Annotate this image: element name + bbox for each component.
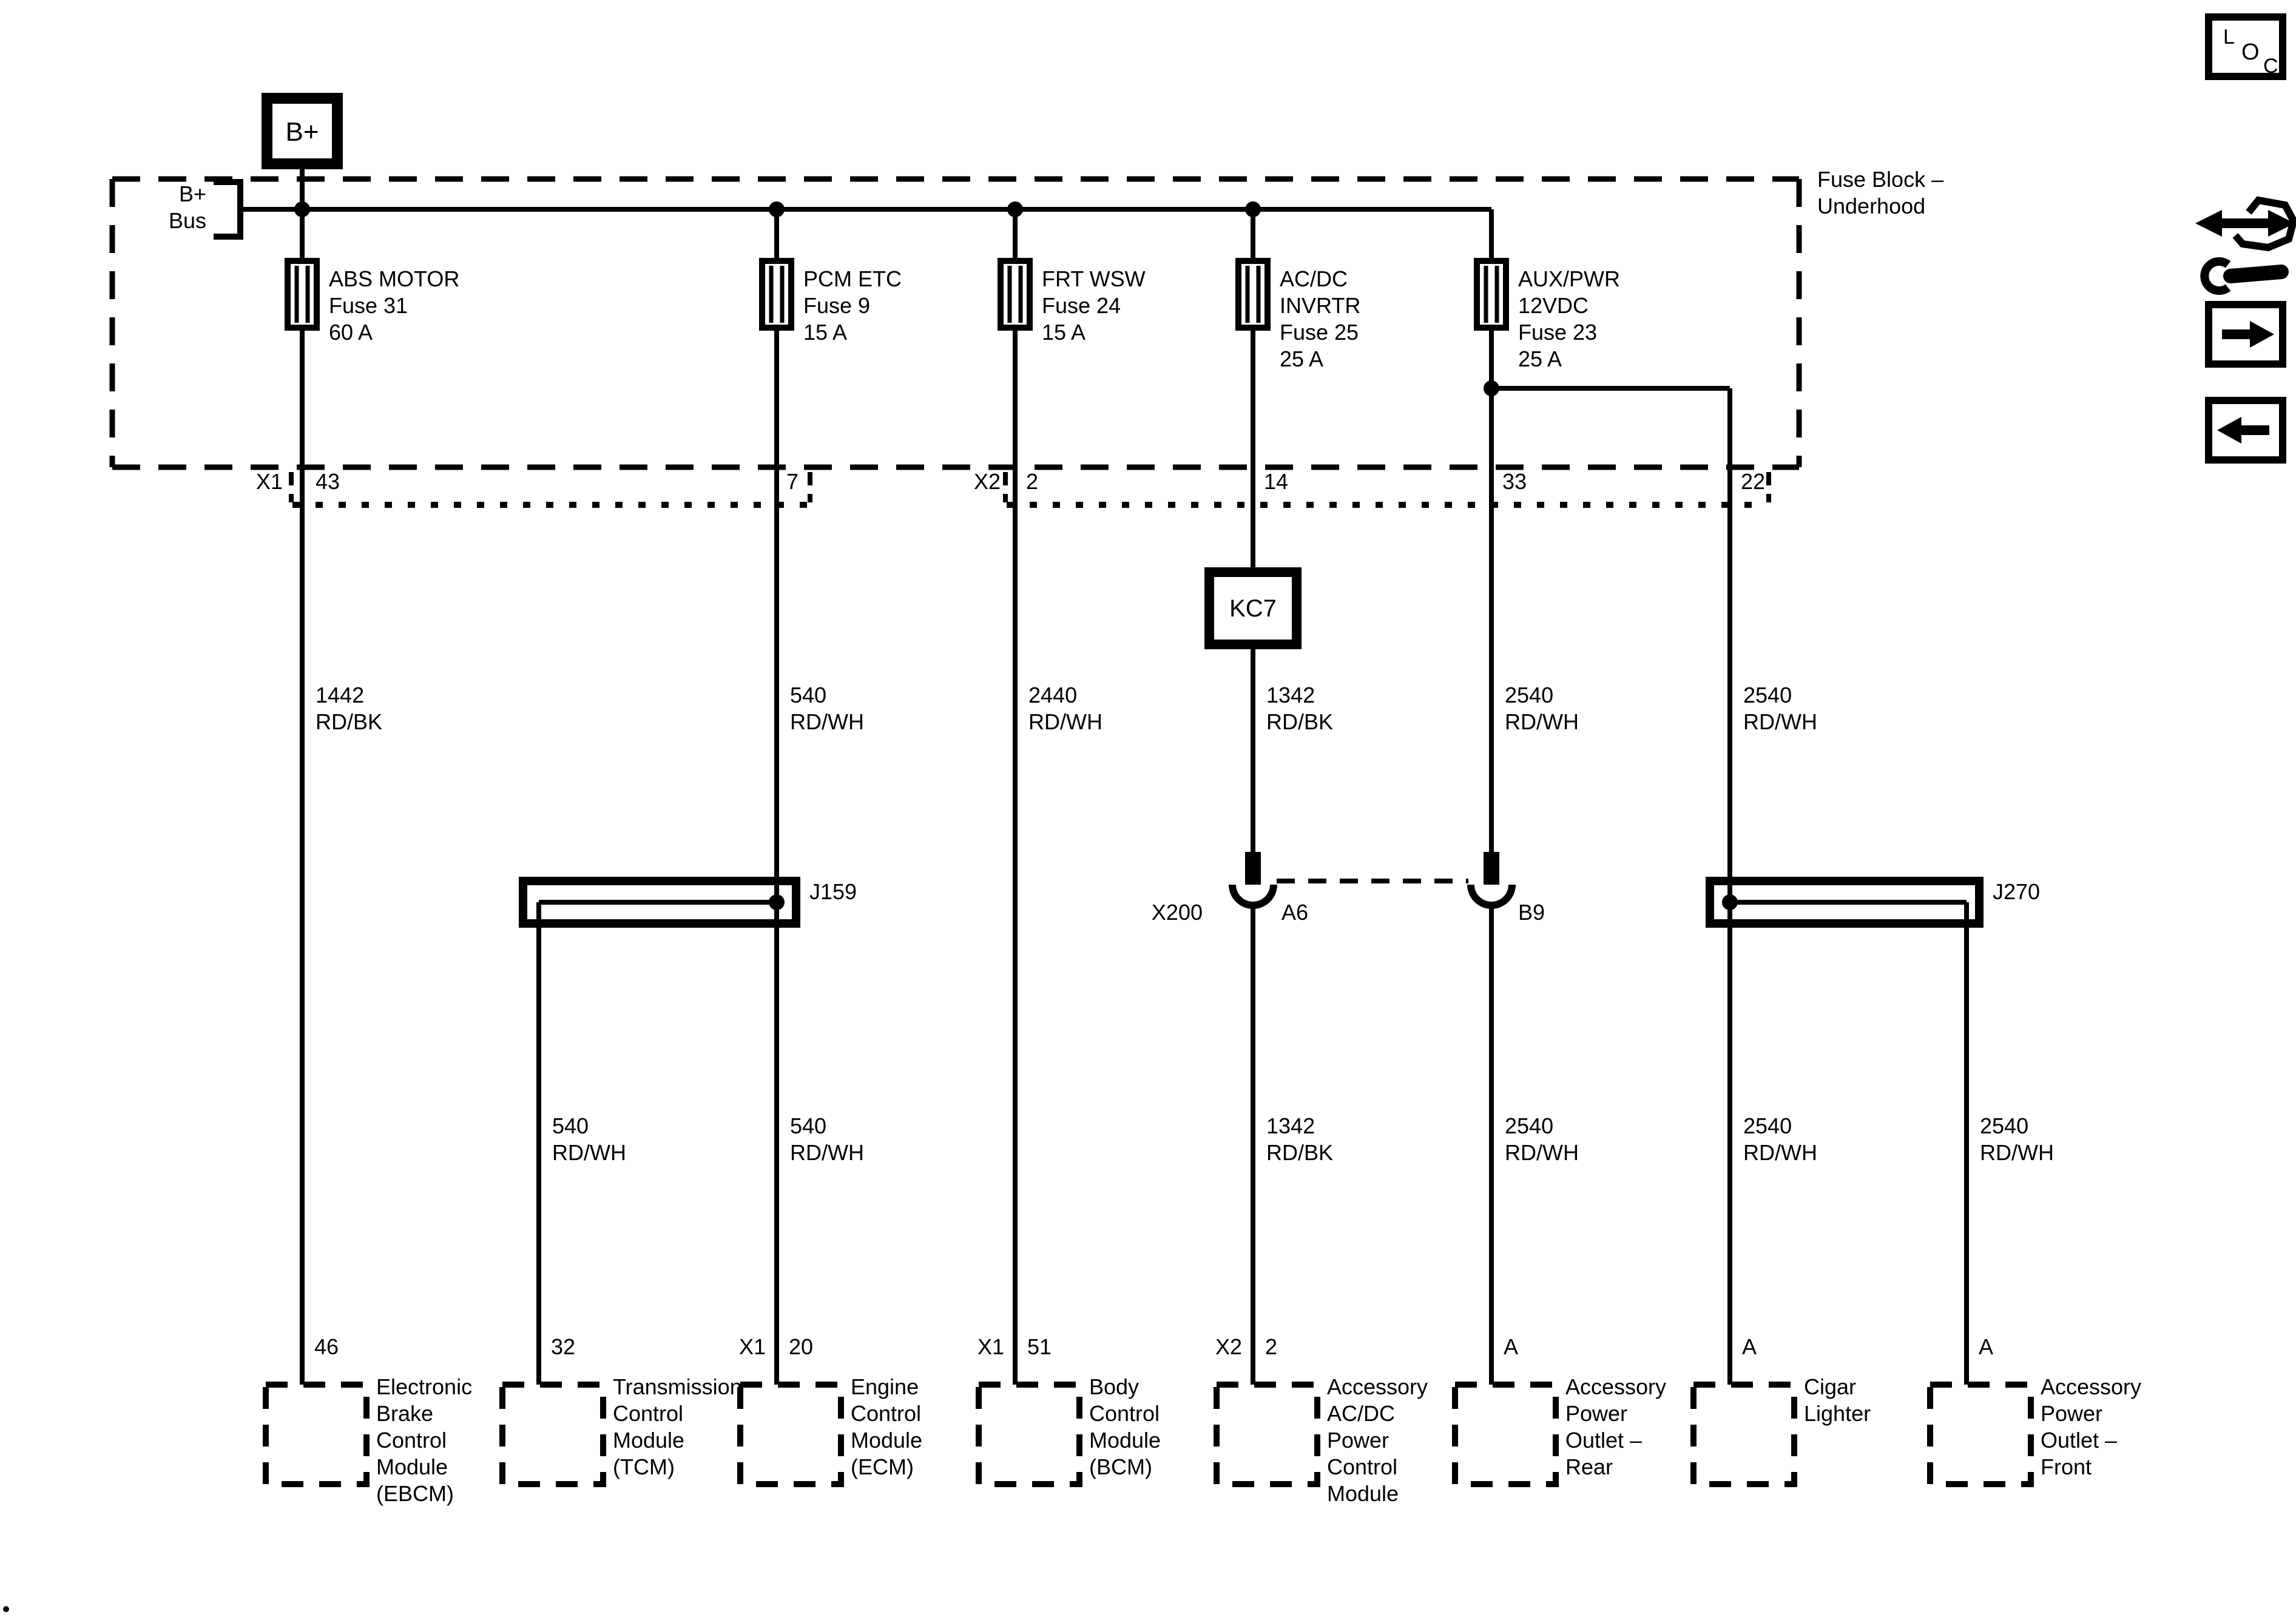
fuse-abs-motor: ABS MOTOR Fuse 31 60 A [288, 261, 459, 345]
fuse-number: Fuse 25 [1280, 320, 1359, 345]
fuse-rating: 15 A [803, 320, 847, 345]
module-pin: 46 [314, 1334, 339, 1359]
module-name: Accessory [1327, 1374, 1428, 1399]
wire-circuit: 2540 [1505, 1113, 1553, 1138]
wire-color: RD/WH [790, 1140, 864, 1165]
module-pin: 20 [789, 1334, 813, 1359]
x200-label: X200 [1152, 900, 1203, 925]
module-name: Rear [1565, 1454, 1613, 1479]
junction-dot [1722, 894, 1738, 910]
bus-label-line2: Bus [169, 208, 206, 233]
module-connector: X1 [977, 1334, 1004, 1359]
module-accessory-power-outlet-rear: A Accessory Power Outlet – Rear [1455, 1334, 1666, 1484]
module-name: Control [613, 1401, 683, 1426]
loc-letter-o: O [2241, 39, 2260, 65]
module-name: Engine [851, 1374, 919, 1399]
module-name: (EBCM) [376, 1481, 454, 1506]
module-name: Accessory [2041, 1374, 2141, 1399]
fuse-pcm-etc: PCM ETC Fuse 9 15 A [762, 261, 902, 345]
wrench-handle [2230, 272, 2281, 276]
pin-2: 2 [1026, 469, 1038, 494]
wire-circuit: 1342 [1266, 1113, 1315, 1138]
double-arrow-left-head [2195, 210, 2222, 237]
module-name: Lighter [1804, 1401, 1871, 1426]
diagnostic-tool-icon[interactable] [2195, 200, 2295, 291]
module-name: AC/DC [1327, 1401, 1395, 1426]
fuse-aux-pwr: AUX/PWR 12VDC Fuse 23 25 A [1477, 261, 1620, 371]
connector-socket [1232, 885, 1274, 905]
module-name: Front [2041, 1454, 2092, 1479]
module-name: Outlet – [2041, 1428, 2117, 1453]
wire-color: RD/WH [1505, 1140, 1579, 1165]
back-arrow-button[interactable] [2209, 400, 2283, 460]
wire-circuit: 540 [790, 1113, 826, 1138]
fuse-block-title-line1: Fuse Block – [1817, 167, 1943, 192]
module-pin: A [1742, 1334, 1757, 1359]
module-name: Module [376, 1454, 448, 1479]
module-name: Brake [376, 1401, 433, 1426]
wire-color: RD/WH [552, 1140, 626, 1165]
module-box [979, 1385, 1079, 1484]
fuse-number: Fuse 9 [803, 293, 870, 318]
wire-color: RD/WH [1505, 709, 1579, 734]
loc-button[interactable]: L O C [2209, 17, 2283, 78]
module-name: (BCM) [1089, 1454, 1152, 1479]
module-name: Body [1089, 1374, 1139, 1399]
wire-color: RD/WH [1028, 709, 1102, 734]
b-plus-label: B+ [285, 117, 319, 147]
wire-circuit: 2540 [1505, 683, 1553, 707]
module-box [1217, 1385, 1317, 1484]
loc-letter-c: C [2263, 55, 2278, 78]
relay-kc7: KC7 [1209, 572, 1297, 644]
fuse-icon [762, 261, 791, 328]
module-connector: X2 [1215, 1334, 1242, 1359]
x200-pin-a6: A6 [1281, 900, 1308, 925]
wire-color: RD/WH [1743, 1140, 1817, 1165]
wire-circuit: 1442 [316, 683, 364, 707]
module-name: Control [376, 1428, 447, 1453]
module-ebcm: 46 Electronic Brake Control Module (EBCM… [266, 1334, 472, 1506]
fuse-acdc-invrtr: AC/DC INVRTR Fuse 25 25 A [1238, 261, 1360, 371]
fuse-name: AC/DC [1280, 266, 1348, 291]
kc7-label: KC7 [1229, 595, 1277, 622]
module-cigar-lighter: A Cigar Lighter [1693, 1334, 1871, 1484]
loc-letter-l: L [2223, 25, 2235, 49]
wiring-diagram-canvas: B+ Fuse Block – Underhood B+ Bus [0, 0, 2296, 1617]
module-accessory-acdc-power-control: X2 2 Accessory AC/DC Power Control Modul… [1215, 1334, 1428, 1506]
module-name: Module [1089, 1428, 1161, 1453]
x200-pin-b9: B9 [1518, 900, 1545, 925]
wire-color: RD/WH [1743, 709, 1817, 734]
module-pin: A [1504, 1334, 1518, 1359]
wire-color: RD/WH [790, 709, 864, 734]
wire-color: RD/BK [316, 709, 382, 734]
module-name: Module [1327, 1481, 1399, 1506]
module-pin: 2 [1265, 1334, 1277, 1359]
module-bcm: X1 51 Body Control Module (BCM) [977, 1334, 1161, 1484]
pin-43: 43 [316, 469, 340, 494]
module-name: Power [1327, 1428, 1389, 1453]
wire-circuit: 2540 [1743, 683, 1792, 707]
module-box [1693, 1385, 1794, 1484]
module-name: Module [851, 1428, 922, 1453]
fuse-block-underhood: Fuse Block – Underhood B+ Bus ABS MOTOR … [112, 167, 1943, 505]
bus-label-line1: B+ [179, 181, 206, 206]
fuse-frt-wsw: FRT WSW Fuse 24 15 A [1001, 261, 1146, 345]
wire-circuit: 2540 [1980, 1113, 2028, 1138]
wire-color: RD/BK [1266, 709, 1333, 734]
fuse-icon [1477, 261, 1506, 328]
fuse-icon [1238, 261, 1268, 328]
fuse-number: Fuse 23 [1518, 320, 1597, 345]
module-pin: 51 [1027, 1334, 1052, 1359]
fuse-icon [1001, 261, 1030, 328]
wire-labels-row1: 1442 RD/BK 540 RD/WH 2440 RD/WH 1342 RD/… [316, 683, 1817, 734]
j270-label: J270 [1993, 879, 2040, 904]
module-name: Power [1565, 1401, 1627, 1426]
fuse-rating: 25 A [1518, 346, 1562, 371]
fuse-name: PCM ETC [803, 266, 902, 291]
inline-connector-x200: X200 A6 B9 [1152, 852, 1545, 1385]
back-arrow-head [2217, 417, 2241, 444]
forward-arrow-head [2250, 321, 2274, 348]
module-pin: A [1979, 1334, 1993, 1359]
connector-x2-label: X2 [974, 469, 1001, 494]
module-name: (TCM) [613, 1454, 675, 1479]
module-ecm: X1 20 Engine Control Module (ECM) [739, 1334, 922, 1484]
wire-color: RD/WH [1980, 1140, 2054, 1165]
fuse-number: Fuse 24 [1042, 293, 1121, 318]
module-name: Control [1327, 1454, 1397, 1479]
wire-circuit: 2540 [1743, 1113, 1792, 1138]
module-connector: X1 [739, 1334, 766, 1359]
module-name: Control [1089, 1401, 1160, 1426]
module-accessory-power-outlet-front: A Accessory Power Outlet – Front [1930, 1334, 2141, 1484]
fuse-name: AUX/PWR [1518, 266, 1620, 291]
module-box [502, 1385, 603, 1484]
module-pin: 32 [551, 1334, 575, 1359]
module-name: Transmission [613, 1374, 742, 1399]
module-name: Outlet – [1565, 1428, 1642, 1453]
connector-x1-label: X1 [256, 469, 283, 494]
fuse-name: FRT WSW [1042, 266, 1146, 291]
j159-label: J159 [809, 879, 857, 904]
module-name: Control [851, 1401, 921, 1426]
b-plus-bus: B+ Bus [169, 181, 240, 237]
module-box [1930, 1385, 2031, 1484]
fuse-rating: 25 A [1280, 346, 1323, 371]
wire-circuit: 540 [552, 1113, 589, 1138]
module-box [266, 1385, 366, 1484]
module-name: Cigar [1804, 1374, 1856, 1399]
fuse-block-title-line2: Underhood [1817, 194, 1925, 218]
wire-circuit: 540 [790, 683, 826, 707]
fuse-name-line2: INVRTR [1280, 293, 1360, 318]
bus-bracket [214, 182, 240, 237]
fuse-rating: 15 A [1042, 320, 1086, 345]
module-name: Power [2041, 1401, 2102, 1426]
fuse-icon [288, 261, 317, 328]
wire-circuit: 1342 [1266, 683, 1315, 707]
module-name: Module [613, 1428, 684, 1453]
pin-33: 33 [1502, 469, 1527, 494]
junction-dot [294, 201, 310, 217]
pin-14: 14 [1264, 469, 1288, 494]
pin-22: 22 [1741, 469, 1765, 494]
fuse-name: ABS MOTOR [329, 266, 459, 291]
stray-mark [3, 1606, 9, 1612]
module-box [740, 1385, 841, 1484]
module-name: Accessory [1565, 1374, 1666, 1399]
fuse-block-connector-band: X1 X2 43 7 2 14 33 22 [256, 469, 1769, 505]
fuse-rating: 60 A [329, 320, 373, 345]
connector-socket [1471, 885, 1512, 905]
fuse-number: Fuse 31 [329, 293, 408, 318]
junction-dot [769, 894, 785, 910]
wire-color: RD/BK [1266, 1140, 1333, 1165]
wire-circuit: 2440 [1028, 683, 1077, 707]
module-name: (ECM) [851, 1454, 914, 1479]
module-name: Electronic [376, 1374, 472, 1399]
pin-7: 7 [786, 469, 799, 494]
forward-arrow-button[interactable] [2209, 305, 2283, 364]
module-box [1455, 1385, 1556, 1484]
fuse-name-line2: 12VDC [1518, 293, 1589, 318]
